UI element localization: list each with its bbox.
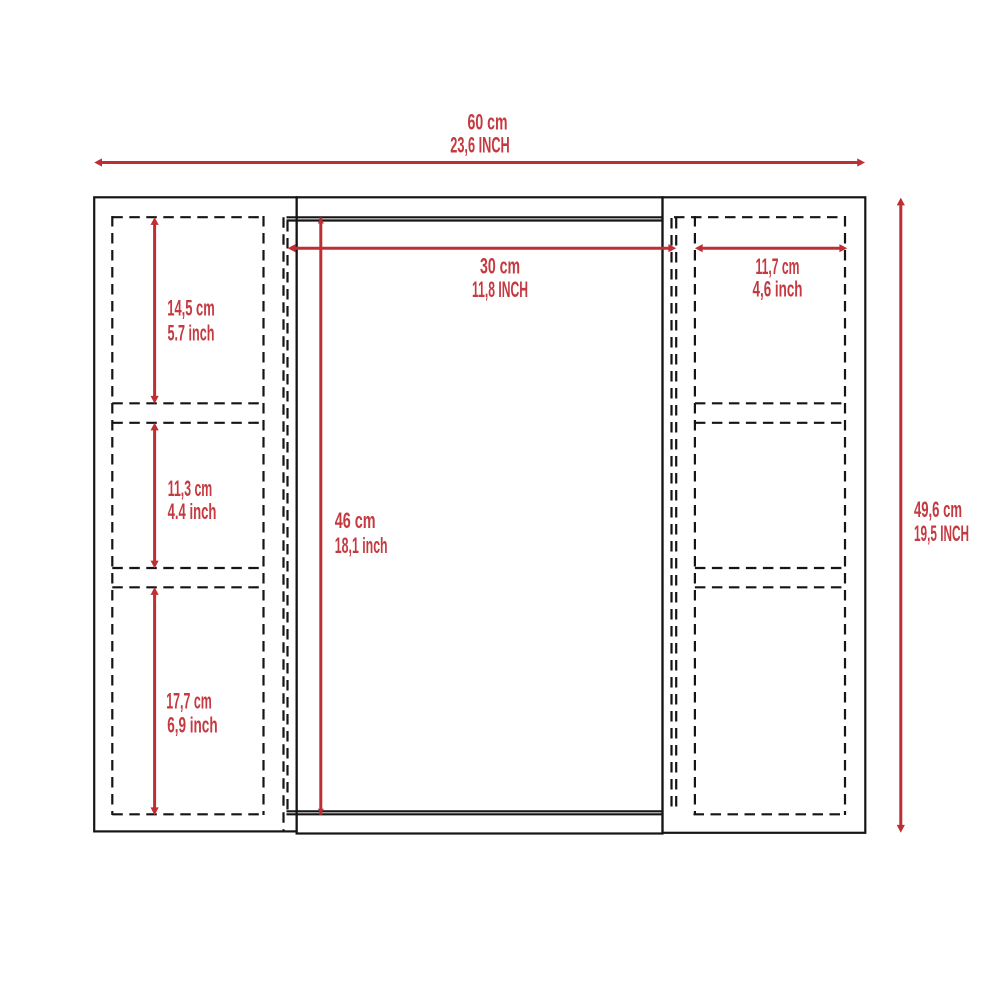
svg-text:6,9 inch: 6,9 inch bbox=[167, 713, 217, 738]
svg-text:11,7 cm: 11,7 cm bbox=[756, 254, 800, 279]
svg-text:19,5 INCH: 19,5 INCH bbox=[914, 521, 969, 546]
svg-text:60 cm: 60 cm bbox=[468, 110, 508, 135]
svg-text:30 cm: 30 cm bbox=[480, 254, 520, 279]
svg-text:5.7 inch: 5.7 inch bbox=[168, 321, 215, 346]
svg-text:14,5 cm: 14,5 cm bbox=[167, 296, 215, 321]
svg-text:46 cm: 46 cm bbox=[335, 508, 376, 533]
svg-text:18,1 inch: 18,1 inch bbox=[335, 533, 388, 558]
svg-text:11,8 INCH: 11,8 INCH bbox=[472, 277, 528, 302]
svg-text:4.4 inch: 4.4 inch bbox=[168, 499, 217, 524]
svg-text:23,6 INCH: 23,6 INCH bbox=[450, 133, 510, 158]
svg-text:49,6 cm: 49,6 cm bbox=[914, 497, 962, 522]
svg-text:17,7 cm: 17,7 cm bbox=[166, 689, 212, 714]
svg-text:11,3 cm: 11,3 cm bbox=[168, 476, 212, 501]
svg-text:4,6 inch: 4,6 inch bbox=[753, 277, 803, 302]
